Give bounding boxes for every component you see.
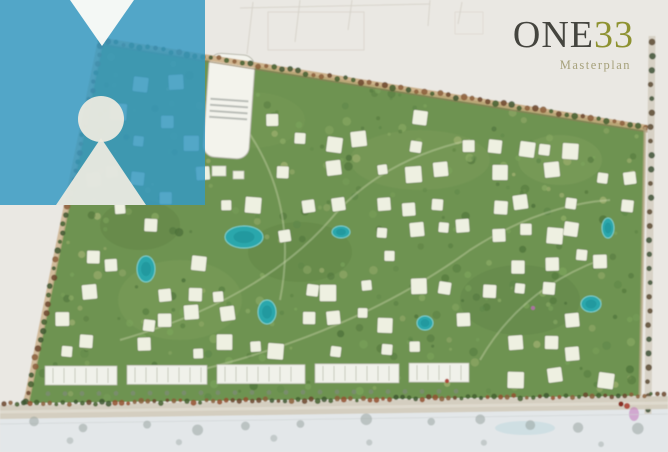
project-name-text: ONE <box>513 14 594 56</box>
project-name: ONE33 <box>513 16 634 54</box>
person-head <box>78 96 124 142</box>
masterplan-subtitle: Masterplan <box>513 58 634 73</box>
project-name-number: 33 <box>594 14 634 56</box>
project-title: ONE33 Masterplan <box>513 16 634 73</box>
brand-logo <box>0 0 205 205</box>
masterplan-page: ONE33 Masterplan <box>0 0 668 452</box>
person-pin-icon <box>0 0 205 205</box>
